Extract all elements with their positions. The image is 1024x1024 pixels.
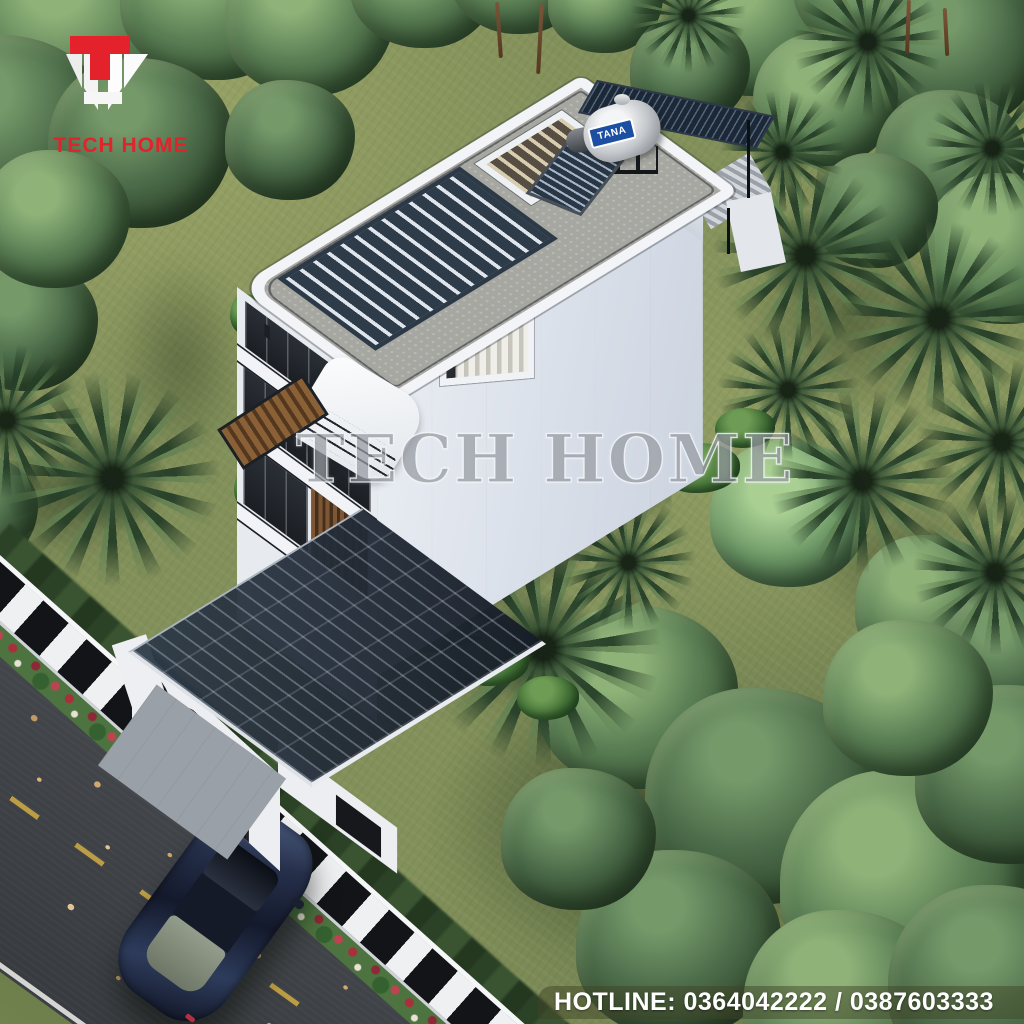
- tank-vent-cap: [614, 94, 630, 105]
- logo-emblem-icon: [38, 22, 168, 152]
- architectural-render-scene: TANA TECH HOME TECH HOME HOTLI: [0, 0, 1024, 1024]
- logo-wordmark: TECH HOME: [26, 134, 216, 158]
- canopy-post: [747, 120, 750, 198]
- side-wall-panel: [336, 795, 381, 858]
- canopy-post: [727, 208, 730, 254]
- rear-annex-wall: [726, 192, 786, 272]
- pergola-louvers: [277, 166, 558, 350]
- tech-home-logo: TECH HOME: [38, 22, 228, 157]
- watermark-text: TECH HOME: [296, 420, 795, 498]
- hotline-bar: HOTLINE: 0364042222 / 0387603333: [538, 986, 1024, 1019]
